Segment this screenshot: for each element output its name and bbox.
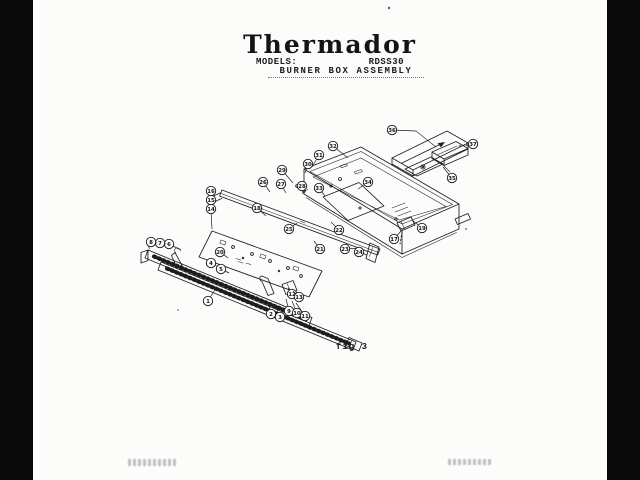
svg-text:5: 5	[219, 267, 223, 273]
svg-text:17: 17	[390, 237, 398, 243]
svg-text:16: 16	[207, 189, 215, 195]
part-balloon-25: 25	[284, 223, 297, 234]
part-balloon-33: 33	[314, 183, 325, 196]
document-page: Thermador MODELS: RDSS30 BURNER BOX ASSE…	[0, 0, 640, 480]
part-balloon-6: 6	[164, 239, 181, 250]
svg-text:15: 15	[207, 198, 215, 204]
svg-text:29: 29	[278, 168, 286, 174]
svg-text:18: 18	[253, 206, 261, 212]
svg-text:13: 13	[295, 295, 303, 301]
svg-text:27: 27	[277, 182, 285, 188]
part-balloon-5: 5	[216, 264, 229, 273]
part-balloon-22: 22	[331, 222, 344, 235]
svg-text:32: 32	[329, 144, 337, 150]
part-balloon-16: 16	[206, 186, 215, 196]
svg-text:6: 6	[167, 242, 171, 248]
svg-text:19: 19	[418, 226, 426, 232]
part-balloon-31: 31	[312, 150, 324, 167]
svg-text:34: 34	[364, 180, 372, 186]
svg-text:4: 4	[209, 261, 213, 267]
part-balloon-26: 26	[258, 177, 270, 192]
svg-text:21: 21	[316, 247, 324, 253]
diagram-line-art	[141, 7, 471, 351]
part-balloon-14: 14	[206, 204, 215, 229]
part-balloon-13: 13	[293, 291, 304, 302]
svg-text:7: 7	[158, 241, 162, 247]
svg-text:24: 24	[355, 250, 363, 256]
svg-text:3: 3	[278, 315, 282, 321]
part-balloon-36: 36	[387, 125, 416, 134]
part-balloon-24: 24	[354, 247, 367, 256]
part-balloon-17: 17	[389, 231, 401, 244]
svg-text:23: 23	[341, 247, 349, 253]
svg-text:14: 14	[207, 207, 215, 213]
footer-artifact-right	[448, 459, 492, 465]
part-balloon-15: 15	[206, 195, 215, 205]
svg-text:33: 33	[315, 186, 323, 192]
svg-text:35: 35	[448, 176, 456, 182]
svg-text:37: 37	[469, 142, 477, 148]
svg-text:31: 31	[315, 153, 323, 159]
figure-caption: fig 3	[336, 342, 368, 352]
footer-artifact-left	[128, 459, 176, 466]
svg-text:2: 2	[269, 312, 273, 318]
svg-text:26: 26	[259, 180, 267, 186]
part-balloon-1: 1	[203, 288, 216, 306]
svg-text:20: 20	[216, 250, 224, 256]
svg-text:25: 25	[285, 227, 293, 233]
svg-text:36: 36	[388, 128, 396, 134]
svg-text:28: 28	[298, 184, 306, 190]
svg-text:9: 9	[287, 309, 291, 315]
part-balloon-20: 20	[215, 247, 228, 258]
part-balloon-27: 27	[276, 179, 286, 193]
svg-text:22: 22	[335, 228, 343, 234]
part-balloon-21: 21	[314, 241, 325, 254]
part-balloon-19: 19	[412, 220, 427, 233]
svg-text:11: 11	[301, 314, 309, 320]
svg-text:8: 8	[149, 240, 153, 246]
svg-text:1: 1	[206, 299, 210, 305]
diagram-svg: 1234567891011121314151617181920212223242…	[0, 0, 640, 480]
svg-text:30: 30	[304, 162, 312, 168]
part-balloon-35: 35	[443, 167, 457, 183]
